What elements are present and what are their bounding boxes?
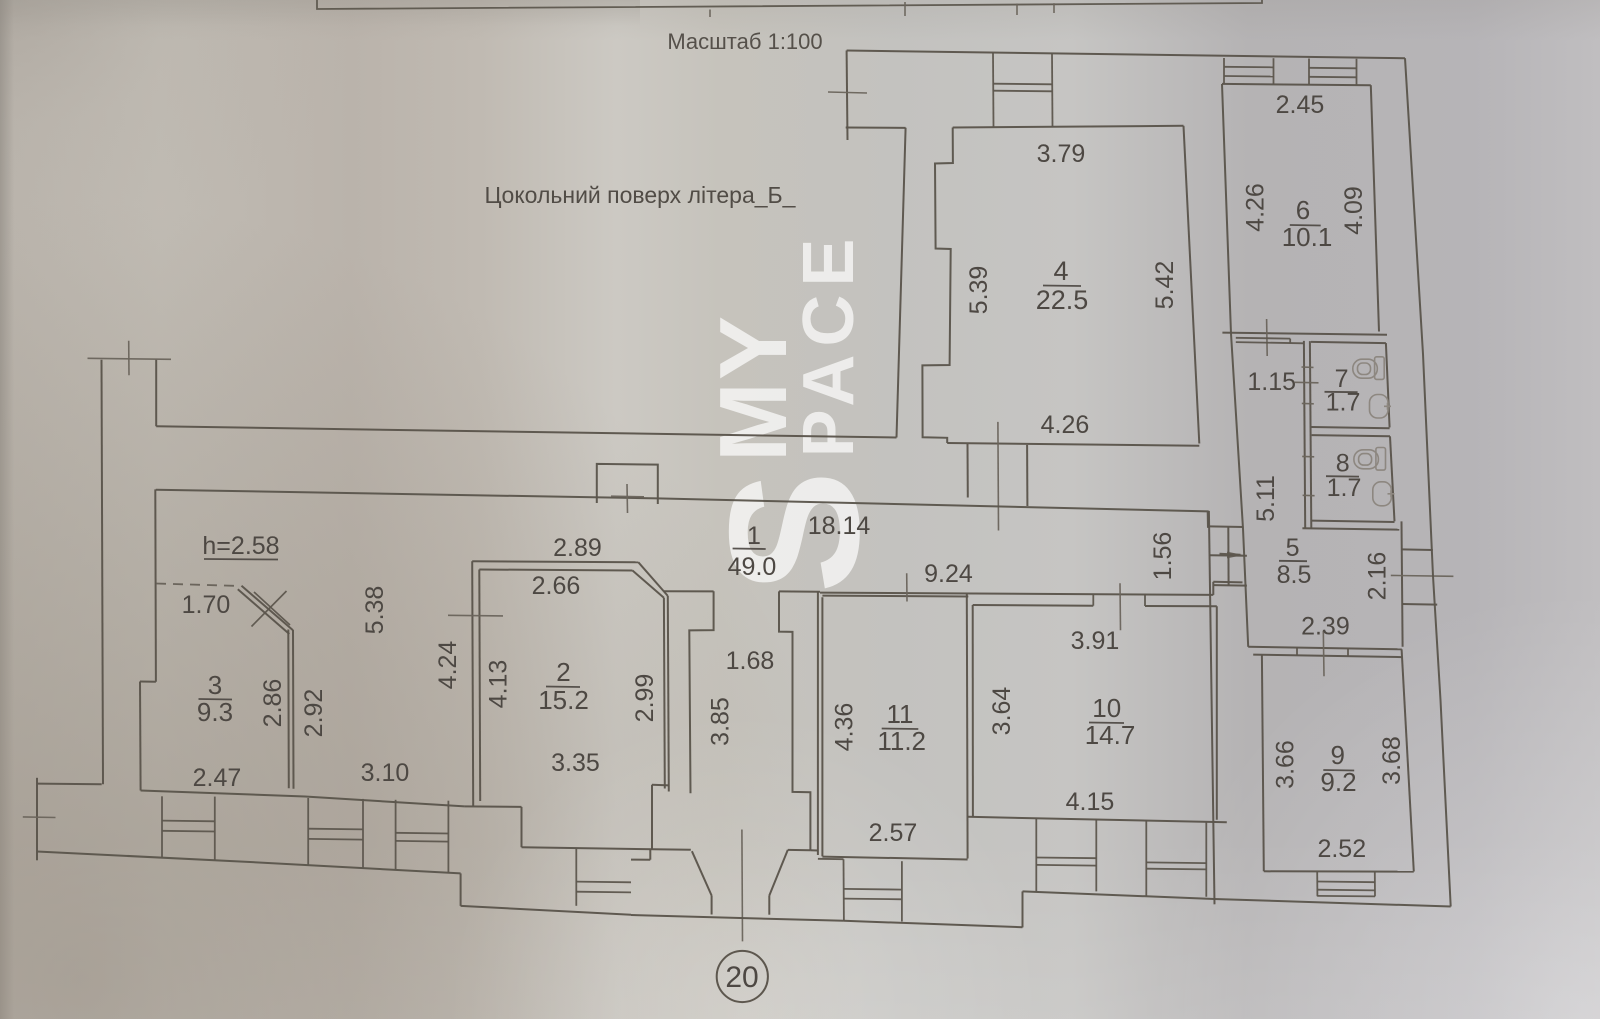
svg-text:4.09: 4.09	[1340, 186, 1368, 235]
svg-text:2: 2	[556, 657, 570, 687]
svg-text:3.10: 3.10	[361, 759, 410, 787]
svg-text:3.64: 3.64	[988, 687, 1016, 736]
svg-text:1.15: 1.15	[1247, 368, 1296, 396]
svg-text:3.66: 3.66	[1271, 740, 1299, 789]
svg-text:2.66: 2.66	[532, 572, 581, 600]
svg-text:1.7: 1.7	[1327, 474, 1362, 502]
svg-text:PACE: PACE	[789, 231, 869, 458]
svg-text:1: 1	[747, 522, 761, 550]
svg-text:6: 6	[1296, 195, 1310, 225]
svg-text:4.26: 4.26	[1041, 411, 1090, 439]
svg-text:2.45: 2.45	[1276, 91, 1325, 119]
svg-text:4.26: 4.26	[1242, 183, 1270, 232]
svg-text:10.1: 10.1	[1282, 222, 1333, 252]
svg-text:Масштаб 1:100: Масштаб 1:100	[667, 29, 822, 54]
svg-text:22.5: 22.5	[1036, 285, 1089, 315]
svg-text:1.70: 1.70	[182, 591, 231, 619]
svg-text:3.85: 3.85	[707, 697, 735, 746]
svg-text:2.86: 2.86	[259, 679, 287, 728]
svg-text:49.0: 49.0	[728, 553, 777, 581]
svg-text:9.3: 9.3	[197, 697, 233, 727]
svg-text:2.47: 2.47	[193, 764, 242, 792]
svg-text:4.13: 4.13	[485, 660, 513, 709]
svg-text:18.14: 18.14	[808, 512, 871, 540]
svg-text:15.2: 15.2	[538, 685, 589, 715]
svg-text:h=2.58: h=2.58	[202, 532, 279, 560]
svg-text:5.38: 5.38	[361, 586, 389, 635]
svg-text:3.79: 3.79	[1037, 140, 1086, 168]
svg-text:4.36: 4.36	[831, 703, 859, 752]
svg-text:4.24: 4.24	[434, 641, 462, 690]
svg-text:1.56: 1.56	[1149, 532, 1177, 581]
svg-text:3.68: 3.68	[1378, 736, 1406, 785]
svg-text:5.39: 5.39	[965, 266, 993, 315]
svg-text:5.42: 5.42	[1151, 261, 1179, 310]
svg-text:3.91: 3.91	[1071, 627, 1120, 655]
svg-text:4.15: 4.15	[1066, 788, 1115, 816]
svg-text:4: 4	[1053, 256, 1068, 286]
svg-text:Цокольний поверх літера_Б_: Цокольний поверх літера_Б_	[485, 182, 797, 208]
svg-text:3.35: 3.35	[551, 749, 600, 777]
svg-text:1.68: 1.68	[726, 647, 775, 675]
svg-text:2.57: 2.57	[869, 819, 918, 847]
svg-text:14.7: 14.7	[1085, 720, 1136, 750]
svg-text:2.89: 2.89	[553, 534, 602, 562]
svg-text:5.11: 5.11	[1252, 475, 1280, 522]
svg-text:2.16: 2.16	[1364, 552, 1392, 601]
svg-text:9.24: 9.24	[924, 560, 973, 588]
svg-text:8.5: 8.5	[1277, 561, 1312, 589]
svg-text:10: 10	[1092, 693, 1121, 723]
svg-text:2.39: 2.39	[1301, 613, 1350, 641]
svg-text:9.2: 9.2	[1320, 767, 1356, 797]
svg-text:11: 11	[887, 699, 914, 729]
svg-text:2.99: 2.99	[631, 674, 659, 723]
svg-text:2.92: 2.92	[300, 689, 328, 738]
svg-text:3: 3	[208, 670, 222, 700]
svg-text:11.2: 11.2	[877, 726, 926, 756]
svg-text:20: 20	[725, 961, 758, 994]
svg-text:9: 9	[1330, 740, 1344, 770]
svg-text:5: 5	[1286, 534, 1300, 562]
svg-text:2.52: 2.52	[1317, 835, 1366, 863]
